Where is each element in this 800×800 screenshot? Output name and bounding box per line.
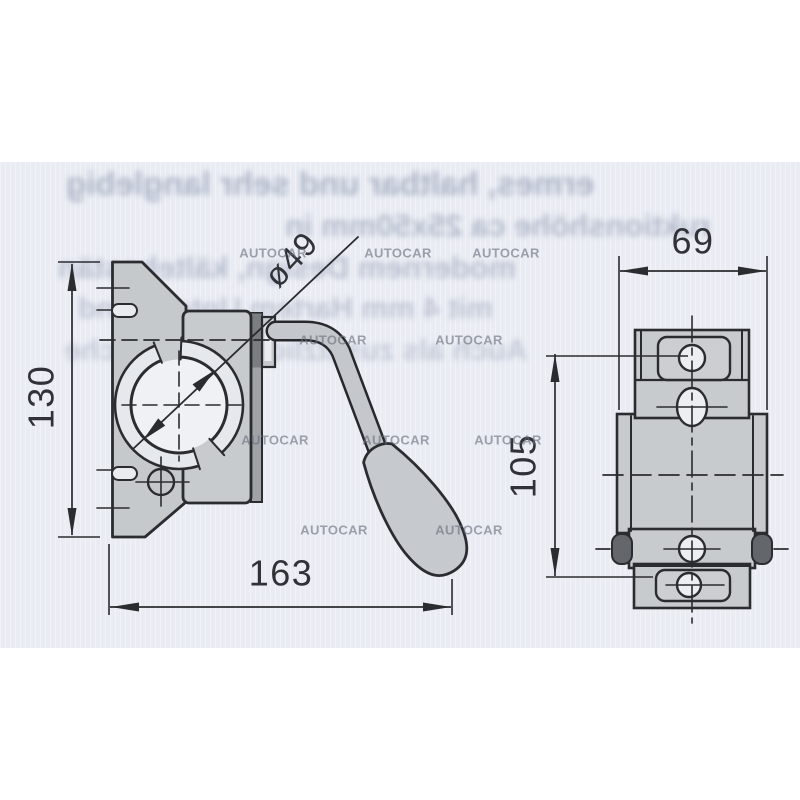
- dim-130-label: 130: [21, 365, 62, 430]
- dim-130: 130: [21, 262, 101, 537]
- dim-163-label: 163: [249, 553, 314, 594]
- arrowhead: [68, 508, 77, 536]
- arrowhead: [423, 603, 451, 612]
- mounting-slot: [112, 467, 137, 480]
- mounting-slot: [112, 304, 137, 317]
- dim-163: 163: [109, 544, 452, 615]
- arrowhead: [551, 354, 560, 382]
- arrowhead: [111, 603, 139, 612]
- handle-knob: [347, 430, 481, 588]
- side-view: [97, 237, 481, 588]
- dim-105-label: 105: [503, 434, 544, 499]
- arrowhead: [551, 548, 560, 576]
- scanned-document-page: ermes, haltbar und sehr langlebig ruktio…: [0, 0, 800, 800]
- dim-49-label: ø49: [257, 224, 326, 294]
- dim-d49: ø49: [257, 224, 326, 294]
- clamp-bump: [752, 534, 772, 564]
- technical-drawing: 130 163 ø49: [0, 0, 800, 800]
- clamp-bump: [612, 534, 632, 564]
- arrowhead: [620, 267, 648, 276]
- arrowhead: [68, 263, 77, 291]
- handle-tube-outline: [276, 331, 382, 461]
- dim-69-label: 69: [671, 221, 714, 262]
- arrowhead: [738, 267, 766, 276]
